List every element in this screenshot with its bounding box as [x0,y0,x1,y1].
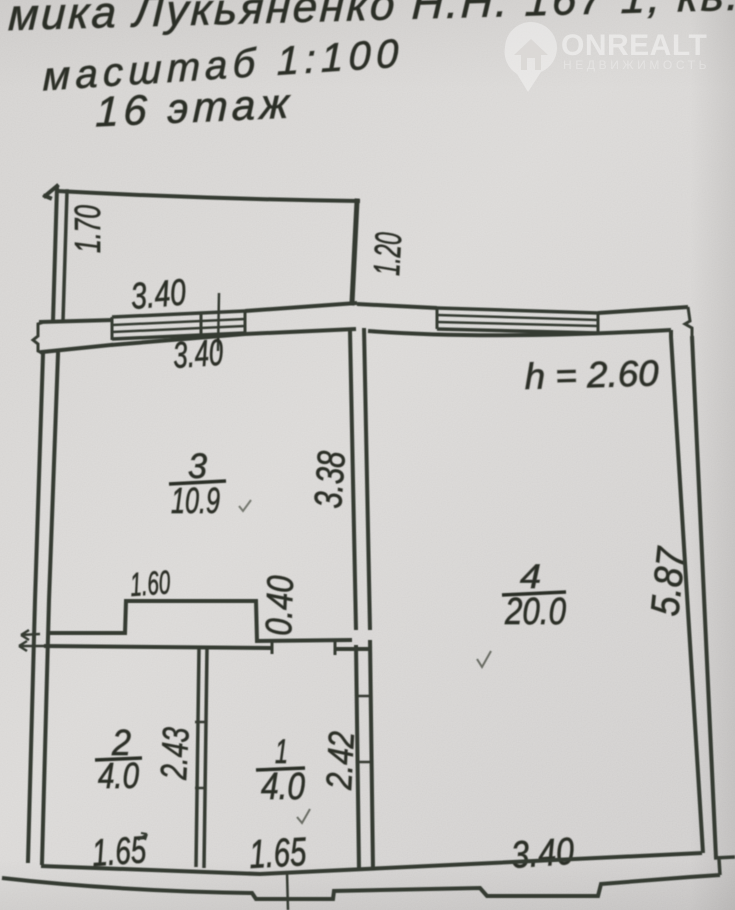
svg-text:1.65: 1.65 [248,830,308,877]
svg-text:3.40: 3.40 [172,332,225,376]
svg-text:1.60: 1.60 [129,563,172,603]
svg-text:4.0: 4.0 [261,766,305,808]
svg-text:3.38: 3.38 [307,450,354,510]
svg-text:16 этаж: 16 этаж [95,79,294,135]
svg-text:h = 2.60: h = 2.60 [524,353,659,397]
svg-text:2.42: 2.42 [318,730,362,791]
svg-text:10.9: 10.9 [171,480,220,521]
svg-text:2.43: 2.43 [153,726,197,781]
svg-text:4.0: 4.0 [98,755,139,796]
svg-text:3.40: 3.40 [129,271,188,317]
svg-text:1.70: 1.70 [67,205,108,253]
svg-text:0.40: 0.40 [258,575,301,637]
svg-text:3.40: 3.40 [510,831,576,877]
svg-text:1.20: 1.20 [366,231,409,276]
svg-text:20.0: 20.0 [504,591,566,633]
svg-text:НЕДВИЖИМОСТЬ: НЕДВИЖИМОСТЬ [563,58,710,72]
